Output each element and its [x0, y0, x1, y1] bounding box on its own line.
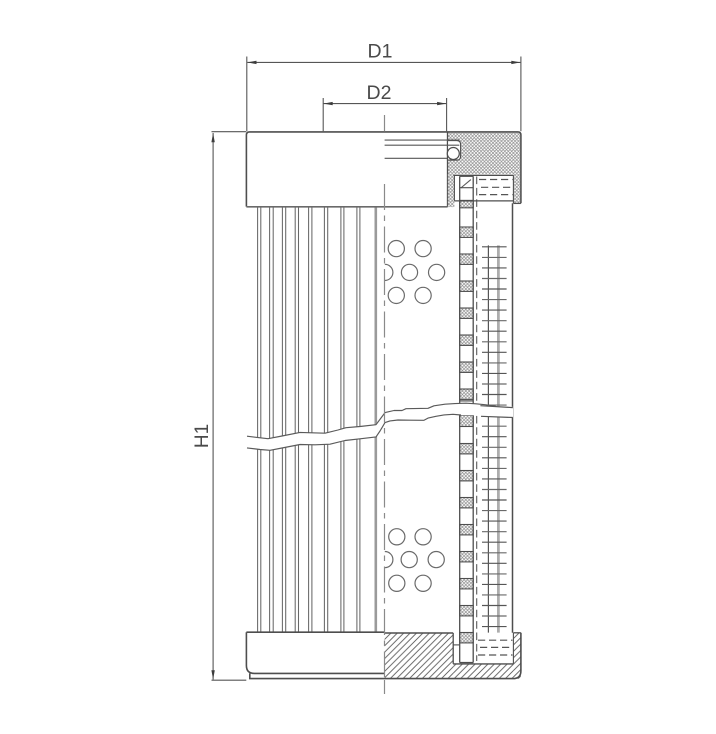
svg-text:D2: D2 — [367, 82, 392, 104]
svg-text:D1: D1 — [368, 41, 393, 63]
svg-text:H1: H1 — [192, 424, 213, 448]
